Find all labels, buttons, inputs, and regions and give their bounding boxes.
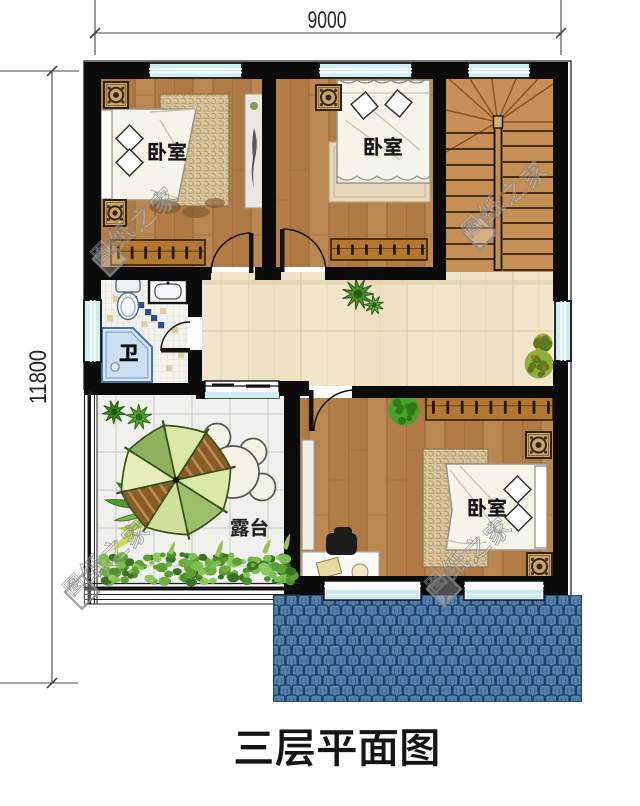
svg-text:11800: 11800	[25, 350, 52, 404]
svg-text:9000: 9000	[308, 7, 347, 34]
